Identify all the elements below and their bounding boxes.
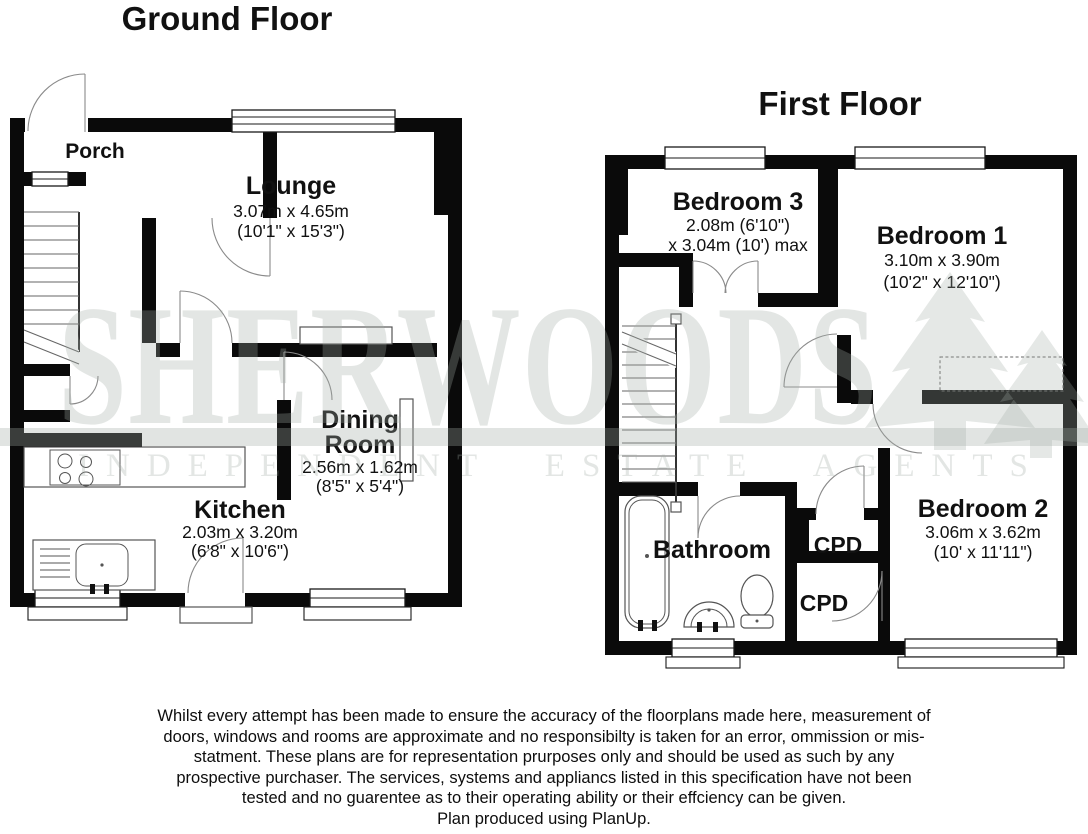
disclaimer-line: prospective purchaser. The services, sys… [0,768,1088,789]
produced-by-line: Plan produced using PlanUp. [0,809,1088,830]
disclaimer-block: Whilst every attempt has been made to en… [0,706,1088,830]
dining-room-dim-metric: 2.56m x 1.62m [302,457,418,477]
dining-room-label-line1: Dining [321,406,399,434]
bedroom3-dim-line2: x 3.04m (10') max [668,235,808,255]
bedroom1-dim-imperial: (10'2" x 12'10") [883,272,1000,292]
bedroom3-label: Bedroom 3 [673,188,804,216]
toilet-icon [741,575,773,628]
kitchen-label: Kitchen [194,496,286,524]
ground-floor-plan: Ground Floor Porch Lounge 3.07m x 4.65m … [10,0,462,623]
floorplan-page: Ground Floor Porch Lounge 3.07m x 4.65m … [0,0,1088,834]
cupboard1-label: CPD [814,532,863,558]
bedroom1-wardrobe-recess [940,357,1063,391]
first-floor-plan: First Floor Bedroom 3 2.08m (6'10") x 3.… [605,85,1077,668]
first-floor-title: First Floor [758,85,921,122]
porch-label: Porch [65,140,125,163]
bedroom2-dim-metric: 3.06m x 3.62m [925,522,1041,542]
first-floor-stairs [622,314,681,512]
dining-room-dim-imperial: (8'5" x 5'4") [316,476,404,496]
kitchen-sink-icon [33,540,155,594]
bedroom1-label: Bedroom 1 [877,222,1008,250]
bedroom3-dim-line1: 2.08m (6'10") [686,215,790,235]
sink-icon [684,602,734,632]
disclaimer-line: Whilst every attempt has been made to en… [0,706,1088,727]
lounge-label: Lounge [246,172,336,200]
kitchen-dim-imperial: (6'8" x 10'6") [191,541,289,561]
kitchen-counter [24,447,245,487]
bedroom1-dim-metric: 3.10m x 3.90m [884,250,1000,270]
disclaimer-line: statment. These plans are for representa… [0,747,1088,768]
bedroom2-label: Bedroom 2 [918,495,1049,523]
bathroom-label: Bathroom [653,536,771,564]
lounge-dim-metric: 3.07m x 4.65m [233,201,349,221]
bedroom2-dim-imperial: (10' x 11'11") [934,542,1033,562]
cupboard2-label: CPD [800,590,849,616]
disclaimer-line: tested and no guarentee as to their oper… [0,788,1088,809]
ground-floor-stairs [24,212,79,366]
ground-floor-title: Ground Floor [122,0,333,37]
disclaimer-line: doors, windows and rooms are approximate… [0,727,1088,748]
kitchen-dim-metric: 2.03m x 3.20m [182,522,298,542]
lounge-dim-imperial: (10'1" x 15'3") [237,221,345,241]
dining-room-label-line2: Room [325,431,396,459]
